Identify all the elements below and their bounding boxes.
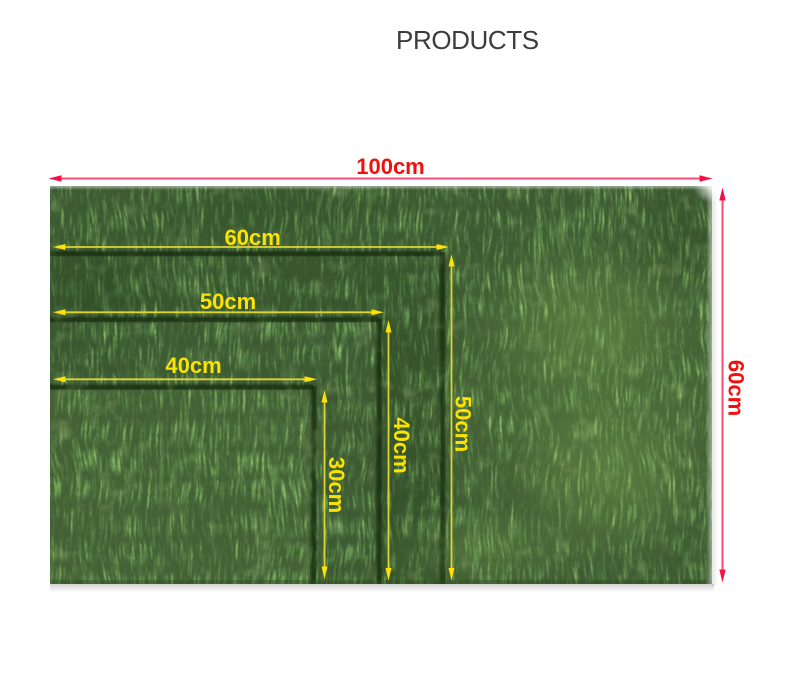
svg-text:50cm: 50cm xyxy=(200,289,256,314)
svg-text:50cm: 50cm xyxy=(451,396,476,452)
svg-text:40cm: 40cm xyxy=(165,353,221,378)
svg-text:60cm: 60cm xyxy=(724,360,749,416)
svg-text:100cm: 100cm xyxy=(356,154,425,179)
svg-text:40cm: 40cm xyxy=(389,417,414,473)
svg-text:30cm: 30cm xyxy=(324,457,349,513)
svg-text:60cm: 60cm xyxy=(225,225,281,250)
